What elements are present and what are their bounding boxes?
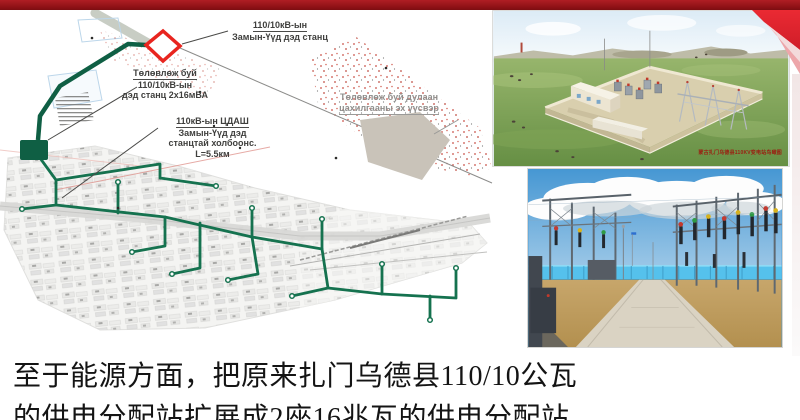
body-text: 至于能源方面，把原来扎门乌德县110/10公瓦 的供电分配站扩展成2座16兆瓦的… — [13, 356, 793, 420]
ribbon-red-band — [752, 10, 800, 50]
label-thermal-line2: цахилгааны эх үүсвэр — [339, 103, 439, 114]
label-transmission-line3: станцтай холбоонс. — [140, 138, 285, 149]
body-text-line2: 的供电分配站扩展成2座16兆瓦的供电分配站. — [13, 398, 793, 420]
presentation-slide: 110/10кВ-ын Замын-Үүд дэд станц Төлөвлөж… — [0, 0, 800, 420]
label-planned-substation: Төлөвлөж буй 110/10кВ-ын дэд станц 2х16м… — [95, 68, 235, 101]
label-transmission-line2: Замын-Үүд дэд — [140, 128, 285, 139]
planned-substation-site — [20, 140, 48, 160]
label-thermal-line1: Төлөвлөж буй дулаан — [339, 92, 439, 103]
ribbon-tail — [792, 74, 800, 356]
label-planned-line2: 110/10кВ-ын — [95, 80, 235, 91]
label-thermal-source: Төлөвлөж буй дулаан цахилгааны эх үүсвэр — [300, 92, 478, 115]
label-existing-line1: 110/10кВ-ын — [253, 20, 307, 32]
slide-accent-bar — [0, 0, 800, 10]
body-text-line1: 至于能源方面，把原来扎门乌德县110/10公瓦 — [13, 356, 793, 398]
city-plan-map — [0, 8, 500, 353]
label-existing-line2: Замын-Үүд дэд станц — [205, 32, 355, 43]
label-existing-substation: 110/10кВ-ын Замын-Үүд дэд станц — [205, 20, 355, 42]
label-transmission-line4: L=5.5км — [140, 149, 285, 160]
label-planned-line3: дэд станц 2х16мВА — [95, 90, 235, 101]
label-transmission-line1: 110кВ-ын ЦДАШ — [176, 116, 249, 128]
corner-ribbon — [740, 0, 800, 380]
label-planned-line1: Төлөвлөж буй — [133, 68, 197, 80]
label-transmission-line: 110кВ-ын ЦДАШ Замын-Үүд дэд станцтай хол… — [140, 116, 285, 159]
